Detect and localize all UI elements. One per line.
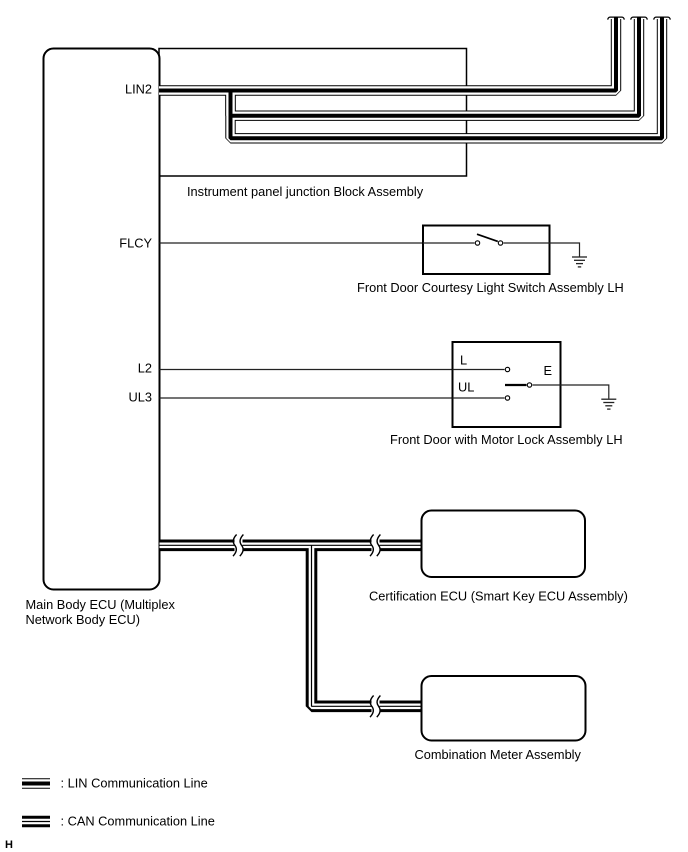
- svg-text:L2: L2: [138, 361, 152, 376]
- svg-text:: CAN Communication Line: : CAN Communication Line: [61, 814, 215, 829]
- svg-text:H: H: [5, 839, 13, 851]
- svg-text:LIN2: LIN2: [125, 82, 152, 97]
- svg-text:L: L: [460, 353, 467, 368]
- svg-text:E: E: [544, 363, 553, 378]
- svg-text:UL: UL: [458, 380, 474, 395]
- svg-text:Front Door Courtesy Light Swit: Front Door Courtesy Light Switch Assembl…: [357, 280, 624, 295]
- svg-text:: LIN Communication Line: : LIN Communication Line: [61, 776, 208, 791]
- svg-text:Main Body ECU (Multiplex: Main Body ECU (Multiplex: [26, 597, 176, 612]
- svg-text:Certification ECU (Smart Key E: Certification ECU (Smart Key ECU Assembl…: [369, 589, 628, 604]
- svg-text:Network Body ECU): Network Body ECU): [26, 612, 141, 627]
- svg-text:Combination Meter Assembly: Combination Meter Assembly: [415, 747, 582, 762]
- svg-text:FLCY: FLCY: [119, 236, 152, 251]
- svg-text:Front Door with Motor Lock Ass: Front Door with Motor Lock Assembly LH: [390, 432, 623, 447]
- svg-text:Instrument panel junction Bloc: Instrument panel junction Block Assembly: [187, 184, 424, 199]
- svg-text:UL3: UL3: [129, 390, 152, 405]
